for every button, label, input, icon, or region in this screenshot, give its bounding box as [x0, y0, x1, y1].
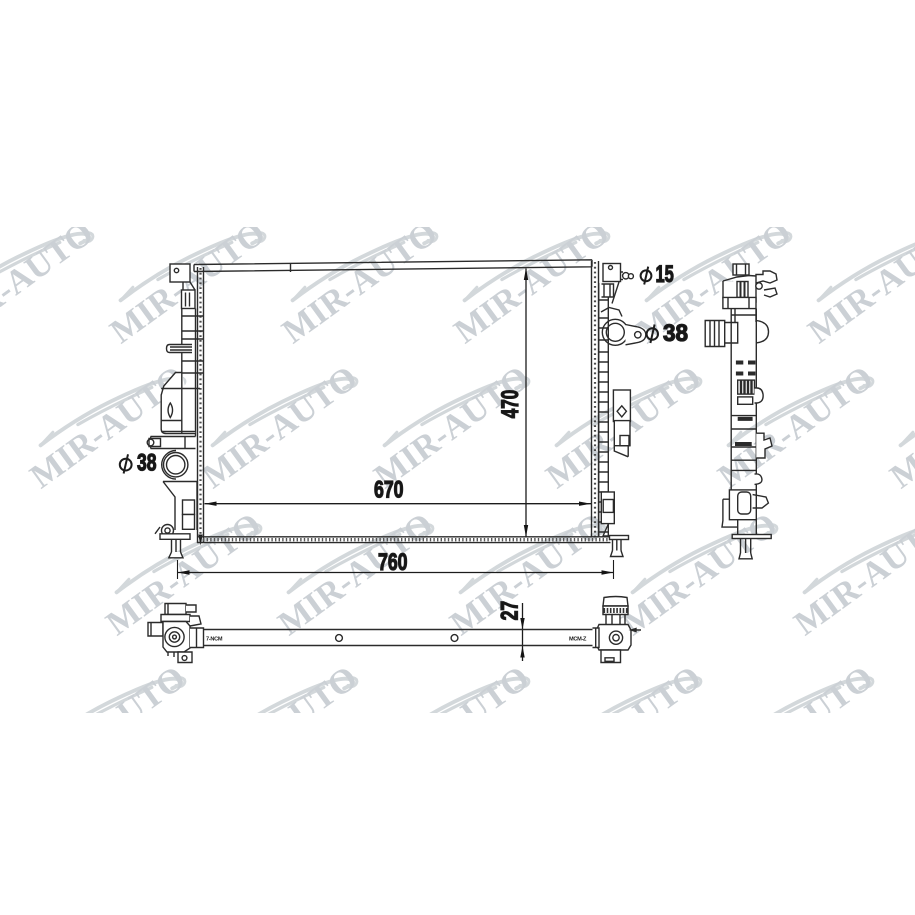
svg-text:38: 38 — [663, 320, 688, 347]
svg-text:7-NCM: 7-NCM — [206, 637, 223, 643]
svg-text:38: 38 — [137, 449, 157, 476]
svg-text:470: 470 — [497, 390, 524, 419]
svg-text:MCM-Z: MCM-Z — [569, 637, 587, 643]
svg-text:670: 670 — [374, 476, 404, 503]
svg-text:27: 27 — [497, 601, 524, 621]
svg-text:15: 15 — [656, 261, 674, 288]
svg-text:760: 760 — [378, 549, 408, 576]
